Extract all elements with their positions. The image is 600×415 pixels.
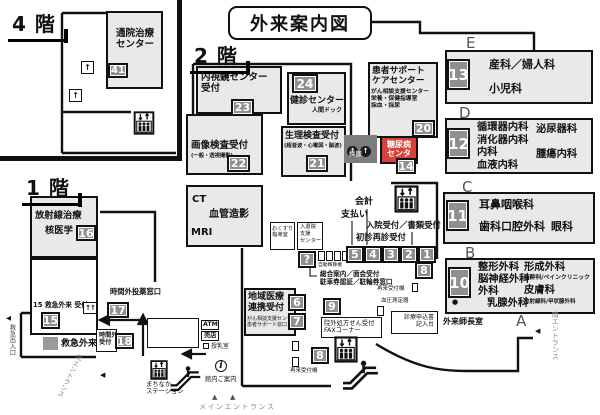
nursing-room-label: 授乳室: [211, 343, 229, 350]
south-entrance-marker-icon: ◀: [535, 327, 540, 335]
emergency-label: 救急外来: [61, 339, 97, 350]
bullet-icon: ●: [452, 298, 458, 306]
after-hours-pharmacy-label: 時間外投薬窓口: [110, 288, 161, 297]
mri-label: MRI: [191, 227, 212, 239]
section-letter-c: C: [462, 178, 472, 196]
badge-2: 2: [400, 246, 418, 263]
badge-24: 24: [292, 74, 318, 93]
dept-d-col1: 循環器内科 消化器内科 内科 血液内科: [477, 121, 528, 171]
first-return-reception-label: 初診再診受付: [356, 233, 406, 243]
info-icon: i: [215, 360, 227, 372]
medicine-guidance-label: おくすり 指導室: [272, 226, 293, 239]
physiology-label: 生理検査受付: [285, 131, 339, 142]
south-entrance-label: 南エントランス: [551, 311, 559, 360]
emergency-exit-marker-icon: ◀: [6, 315, 11, 323]
badge-5: 5: [346, 246, 364, 263]
return-machine-bottom-label: 再来受付機: [290, 368, 318, 374]
room-small-1f: [147, 318, 199, 348]
badge-22: 22: [227, 155, 250, 172]
badge-11: 11: [446, 200, 469, 231]
endoscopy-label: 内視鏡センター 受付: [201, 72, 268, 94]
badge-14: 14: [396, 158, 416, 174]
badge-18: 18: [115, 333, 134, 349]
outpatient-treatment-center-label: 通院治療 センター: [112, 28, 158, 50]
escalator-icon: [340, 358, 380, 396]
atm-label: ATM: [203, 321, 218, 328]
auto-pay-machine-icon: [318, 251, 325, 261]
main-entrance-marker-icon: ▲: [230, 393, 235, 401]
elevator-icon: [394, 185, 419, 217]
badge-20: 20: [412, 120, 435, 137]
dept-b-col1: 整形外科 脳神経外科 外科: [478, 261, 529, 297]
patient-support-label: 患者サポート ケアセンター: [372, 66, 425, 87]
main-entrance-marker-icon: ▲: [212, 393, 217, 401]
emergency-marker: [43, 337, 58, 350]
section-letter-a: A: [516, 312, 526, 330]
dept-b-plastic: 形成外科: [524, 261, 565, 273]
elevator-small-icon: ↑↑: [83, 302, 97, 314]
physiology-sub: (超音波・心電図・脳波): [284, 143, 342, 149]
elevator-icon: [133, 111, 155, 139]
head-nurse-room-label: 外来師長室: [443, 317, 483, 326]
general-info-label: 総合案内／面会受付 駐車券認証／駐輪券窓口: [320, 271, 393, 287]
section-letter-e: E: [466, 34, 475, 52]
badge-4: 4: [364, 246, 382, 263]
application-desk-label: 診療申込書 記入台: [398, 314, 434, 328]
main-entrance-label: メインエントランス: [199, 403, 275, 411]
badge-15: 15: [41, 312, 60, 329]
dept-e-pediatrics: 小児科: [489, 83, 522, 96]
dept-d-oncology: 腫瘍内科: [536, 148, 577, 160]
badge-8: 8: [415, 262, 433, 279]
badge-12: 12: [447, 128, 470, 159]
checkup-center-label: 健診センター: [290, 96, 344, 107]
elevator-icon: [150, 360, 168, 384]
urine-sampling-label: 採尿: [349, 151, 362, 159]
nursing-room-icon: [203, 343, 209, 349]
dept-b-small: 放射線科/甲状腺外科: [524, 299, 576, 305]
badge-17: 17: [107, 302, 129, 318]
radiation-label: 放射線治療: [35, 211, 82, 222]
admission-support-label: 入退院 支援 センター: [300, 224, 321, 245]
badge-21: 21: [306, 155, 328, 172]
badge-3: 3: [382, 246, 400, 263]
escalator-icon: [168, 364, 202, 397]
badge-41: 41: [108, 63, 128, 78]
dept-c-eye: 眼科: [551, 221, 573, 234]
badge-question: ?: [298, 251, 316, 268]
floor-map: 外来案内図 4 階 2 階 1 階 通院治療 センター 41 ↑ ↑ 内視鏡セン…: [0, 0, 600, 415]
dept-c-ent: 耳鼻咽喉科: [479, 199, 534, 212]
dept-c-dental: 歯科口腔外科: [479, 221, 545, 234]
shop-label: 売店: [204, 332, 217, 339]
floor-label-4f: 4 階: [8, 8, 68, 42]
section-letter-d: D: [459, 104, 471, 122]
auto-pay-machine-icon: [326, 251, 333, 261]
return-machine-right-label: 再来受付機: [377, 286, 405, 292]
badge-8: 8: [311, 347, 329, 364]
badge-10: 10: [448, 267, 471, 298]
payment-label: 支払い: [341, 210, 368, 221]
return-machine-icon: [412, 283, 418, 292]
dept-b-derma: 皮膚科: [524, 284, 555, 296]
badge-9: 9: [323, 298, 341, 315]
badge-7: 7: [288, 313, 306, 330]
floor-label-1f: 1 階: [22, 172, 82, 206]
badge-13: 13: [447, 59, 470, 90]
floor-label-2f: 2 階: [190, 40, 250, 74]
prescription-fax-label: 院外処方せん受付 FAXコーナー: [324, 320, 374, 335]
badge-16: 16: [76, 225, 96, 241]
elevator-small-icon: ↑: [81, 61, 94, 74]
return-machine-icon: [292, 341, 299, 351]
dept-b-breast: 乳腺外科: [487, 297, 528, 309]
patient-support-sub: がん相談支援センター 栄養・保健指導室 採血・採尿: [371, 89, 429, 109]
blood-pressure-icon: [377, 306, 384, 316]
badge-1: 1: [418, 246, 436, 263]
admission-reception-label: 入院受付／書類受付: [366, 221, 441, 231]
dept-e-obgyn: 産科／婦人科: [489, 59, 555, 72]
blood-pressure-label: 血圧測定器: [381, 298, 409, 304]
page-title: 外来案内図: [228, 6, 372, 40]
checkup-center-sub: 人間ドック: [312, 107, 342, 114]
auto-pay-machine-icon: [334, 251, 341, 261]
north-entrance-marker-icon: ◀: [100, 371, 105, 379]
regional-medical-label: 地域医療 連携受付: [248, 292, 284, 313]
info-guide-label: 館内ご案内: [205, 376, 236, 383]
ct-label: CT: [192, 194, 206, 206]
return-machine-icon: [292, 357, 299, 367]
elevator-small-icon: ↑: [69, 89, 82, 102]
cashier-label: 会計: [355, 197, 373, 208]
badge-23: 23: [231, 99, 254, 116]
badge-6: 6: [288, 294, 306, 311]
er-reception-label: 15 救急外来 受付: [33, 301, 88, 309]
auto-pay-machine-label: 自動精算機: [318, 263, 342, 269]
imaging-label: 画像検査受付: [191, 140, 248, 151]
nuclear-label: 核医学: [45, 226, 73, 237]
dept-b-anesthesia: 麻酔科/ペインクリニック: [524, 275, 590, 282]
section-letter-b: B: [465, 244, 475, 262]
emergency-exit-label: 救急出入口: [8, 324, 15, 356]
dept-d-urology: 泌尿器科: [536, 123, 577, 135]
angiography-label: 血管造影: [209, 209, 249, 221]
